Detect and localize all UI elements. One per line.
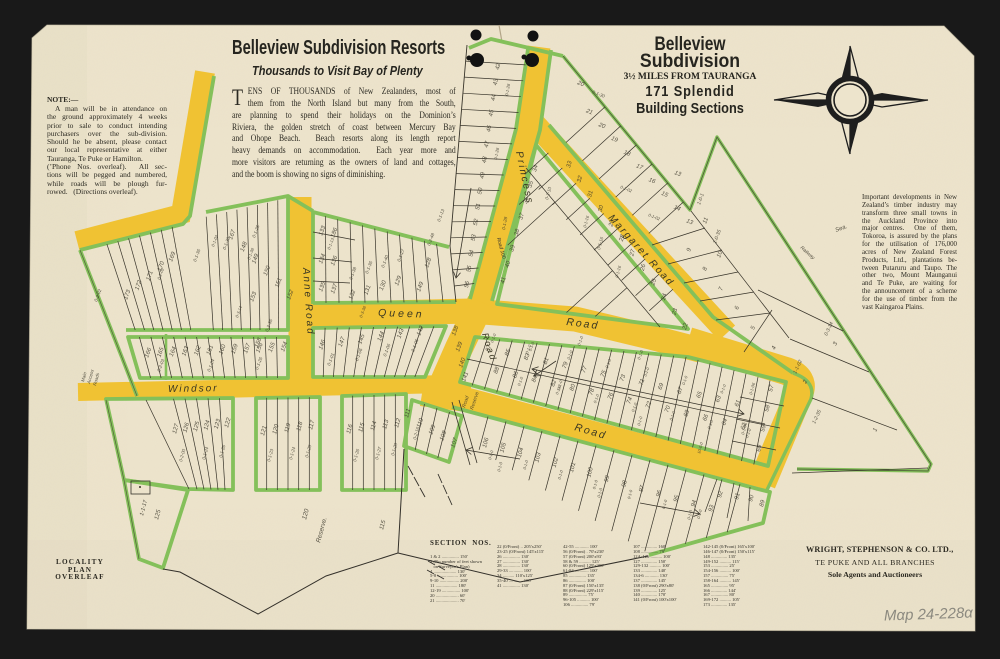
svg-text:Queen: Queen bbox=[378, 307, 425, 321]
svg-text:51: 51 bbox=[475, 203, 482, 211]
svg-text:Windsor: Windsor bbox=[168, 383, 219, 395]
